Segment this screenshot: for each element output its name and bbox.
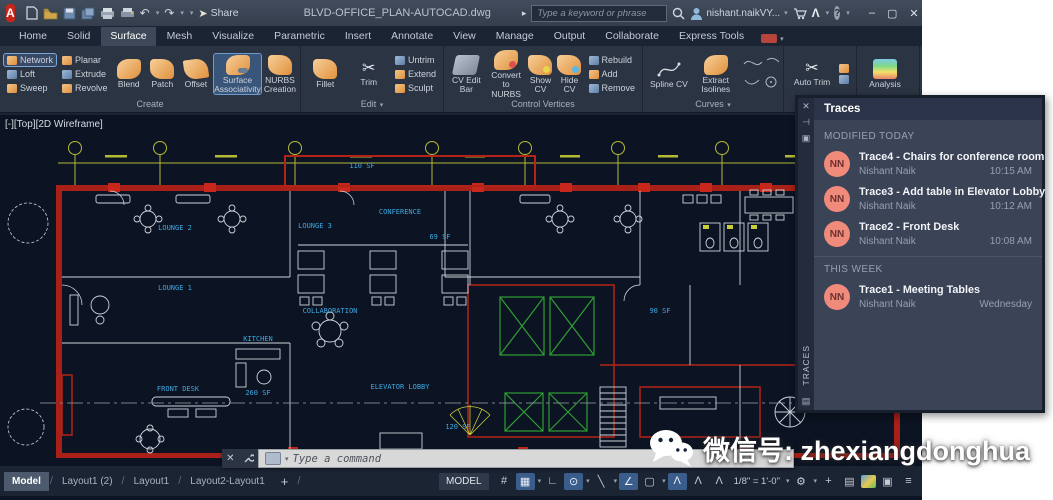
auto-trim-icon: ✂ <box>805 61 818 77</box>
layout2-layout1-tab[interactable]: Layout2-Layout1 <box>182 472 273 491</box>
model-space-button[interactable]: MODEL <box>439 473 489 490</box>
plan-geometry <box>8 142 900 459</box>
traces-palette: ✕ ⊣ ▣ TRACES ▤ Traces MODIFIED TODAY NN … <box>795 95 1045 413</box>
layout1-tab[interactable]: Layout1 <box>126 472 178 491</box>
annotation-scale-value[interactable]: 1/8" = 1'-0" <box>731 476 783 487</box>
clean-screen-icon[interactable]: ▣ <box>878 473 897 490</box>
trace-time: 10:08 AM <box>990 236 1032 247</box>
tab-surface[interactable]: Surface <box>101 27 155 46</box>
command-close-icon[interactable]: ✕ <box>226 453 234 464</box>
new-file-icon[interactable] <box>25 5 38 22</box>
room-label: FRONT DESK <box>157 385 200 393</box>
command-customize-wrench-icon[interactable] <box>243 453 254 464</box>
revolve-button[interactable]: Revolve <box>59 82 111 94</box>
tab-solid[interactable]: Solid <box>58 27 99 46</box>
section-divider <box>814 256 1042 257</box>
save-all-icon[interactable] <box>81 5 95 22</box>
trace-item[interactable]: NN Trace3 - Add table in Elevator Lobby … <box>824 186 1032 212</box>
room-label: ELEVATOR LOBBY <box>370 383 430 391</box>
trace-item[interactable]: NN Trace2 - Front Desk Nishant Naik10:08… <box>824 221 1032 247</box>
ortho-mode-icon[interactable]: ∟ <box>543 473 562 490</box>
graphics-performance-icon[interactable] <box>861 475 876 488</box>
avatar: NN <box>824 186 850 212</box>
fillet-icon <box>313 59 337 79</box>
ribbon-panel-edit: Fillet ✂Trim Untrim Extend Sculpt Edit ▾ <box>301 46 444 112</box>
add-button[interactable]: Add <box>586 68 639 80</box>
curve-tools-icons[interactable] <box>741 54 779 94</box>
spline-cv-button[interactable]: Spline CV <box>647 58 691 89</box>
undo-caret-icon[interactable]: ▾ <box>156 9 160 17</box>
untrim-button[interactable]: Untrim <box>392 54 439 66</box>
search-input[interactable] <box>531 5 667 22</box>
tab-home[interactable]: Home <box>10 27 56 46</box>
project-tool-icon[interactable] <box>839 75 849 84</box>
panel-label-curves[interactable]: Curves ▾ <box>643 99 783 112</box>
traces-section-heading: MODIFIED TODAY <box>824 131 1032 142</box>
traces-close-icon[interactable]: ✕ <box>802 101 810 112</box>
rebuild-button[interactable]: Rebuild <box>586 54 639 66</box>
help-icon[interactable]: ? <box>834 6 840 20</box>
extract-isolines-icon <box>704 55 728 75</box>
qat-dropdown-icon[interactable]: ▾ <box>190 9 194 17</box>
command-input[interactable]: Type a command <box>293 453 382 465</box>
annotation-scale-icon[interactable]: Λ <box>710 473 729 490</box>
tab-visualize[interactable]: Visualize <box>203 27 263 46</box>
title-arrow-icon: ▸ <box>522 8 527 19</box>
panel-label-edit[interactable]: Edit ▾ <box>301 99 443 112</box>
add-icon <box>589 70 599 79</box>
offset-button[interactable]: Offset <box>181 58 212 89</box>
ribbon-panel-curves: Spline CV Extract Isolines Curves ▾ <box>643 46 784 112</box>
trace-time: 10:15 AM <box>990 166 1032 177</box>
tab-manage[interactable]: Manage <box>487 27 543 46</box>
viewport-controls[interactable]: [-][Top][2D Wireframe] <box>5 119 103 130</box>
layout1-2-tab[interactable]: Layout1 (2) <box>54 472 121 491</box>
polar-tracking-icon[interactable]: ⊙ <box>564 473 583 490</box>
patch-button[interactable]: Patch <box>147 58 178 89</box>
search-icon[interactable] <box>672 5 685 22</box>
trim-scissors-icon: ✂ <box>362 61 375 77</box>
untrim-icon <box>395 56 405 65</box>
hide-cv-button[interactable]: Hide CV <box>556 54 582 95</box>
maximize-button[interactable]: ▢ <box>887 7 897 20</box>
patch-icon <box>150 59 174 79</box>
status-bar: Model / Layout1 (2) / Layout1 / Layout2-… <box>0 466 922 496</box>
traces-section-heading: THIS WEEK <box>824 264 1032 275</box>
customization-plus-icon[interactable]: + <box>819 473 838 490</box>
annotation-visibility-icon[interactable]: Λ <box>668 473 687 490</box>
room-label: 260 SF <box>245 389 270 397</box>
panel-label-create[interactable]: Create <box>0 99 300 112</box>
surface-associativity-icon <box>226 55 250 75</box>
room-label: KITCHEN <box>243 335 273 343</box>
blend-button[interactable]: Blend <box>114 58 145 89</box>
spline-cv-icon <box>657 59 681 79</box>
ribbon-panel-create: Network Loft Sweep Planar Extrude Revolv… <box>0 46 301 112</box>
floor-plan-canvas[interactable]: LOUNGE 2 LOUNGE 3 LOUNGE 1 CONFERENCE CO… <box>0 135 922 470</box>
panel-label-control-vertices[interactable]: Control Vertices <box>444 99 642 112</box>
cart-icon[interactable] <box>793 5 807 22</box>
trace-author: Nishant Naik <box>859 236 916 247</box>
new-layout-button[interactable]: + <box>273 474 297 489</box>
avatar: NN <box>824 151 850 177</box>
wechat-icon <box>648 428 694 469</box>
trace-title: Trace2 - Front Desk <box>859 221 1032 233</box>
share-plane-icon: ➤ <box>198 7 207 20</box>
blend-icon <box>117 59 141 79</box>
area-label: 110 SF <box>349 162 374 170</box>
tab-view[interactable]: View <box>444 27 485 46</box>
room-label: COLLABORATION <box>303 307 358 315</box>
tab-annotate[interactable]: Annotate <box>382 27 442 46</box>
trim-button[interactable]: ✂Trim <box>348 60 388 87</box>
snap-caret-icon[interactable]: ▾ <box>538 477 542 485</box>
traces-palette-titlebar: ✕ ⊣ ▣ TRACES ▤ <box>798 98 814 410</box>
open-folder-icon[interactable] <box>43 5 58 22</box>
sweep-button[interactable]: Sweep <box>4 82 56 94</box>
cv-edit-bar-button[interactable]: CV Edit Bar <box>448 54 485 95</box>
watermark-text: 微信号: zhexiangdonghua <box>703 429 1030 468</box>
tab-parametric[interactable]: Parametric <box>265 27 334 46</box>
tray-icon[interactable]: ▤ <box>840 473 859 490</box>
traces-panel-title: Traces <box>814 98 1042 120</box>
tab-insert[interactable]: Insert <box>336 27 380 46</box>
analysis-icon <box>873 59 897 79</box>
traces-autohide-icon[interactable]: ⊣ <box>802 117 810 128</box>
tab-mesh[interactable]: Mesh <box>158 27 202 46</box>
extend-icon <box>395 70 405 79</box>
traces-dock-icon[interactable]: ▤ <box>802 396 811 407</box>
fillet-button[interactable]: Fillet <box>305 58 345 89</box>
model-tab[interactable]: Model <box>4 472 49 491</box>
hide-cv-icon <box>557 55 581 75</box>
grid-display-icon[interactable]: # <box>495 473 514 490</box>
snap-mode-icon[interactable]: ▦ <box>516 473 535 490</box>
extrude-icon <box>62 70 72 79</box>
ribbon-overflow-button[interactable]: ▾ <box>761 34 784 43</box>
autocad-logo-icon[interactable]: A <box>6 4 15 22</box>
room-label: LOUNGE 1 <box>158 284 192 292</box>
rebuild-icon <box>589 56 599 65</box>
planar-icon <box>62 56 72 65</box>
user-icon <box>690 7 703 20</box>
convert-to-nurbs-button[interactable]: Convert to NURBS <box>488 49 525 99</box>
nurbs-creation-button[interactable]: NURBS Creation <box>264 54 296 95</box>
plot-icon[interactable] <box>100 5 115 22</box>
print-icon[interactable] <box>120 5 135 22</box>
revolve-icon <box>62 84 72 93</box>
tab-separator: / <box>296 475 301 487</box>
sculpt-button[interactable]: Sculpt <box>392 82 439 94</box>
polar-caret-icon[interactable]: ▾ <box>586 477 590 485</box>
osnap-caret-icon[interactable]: ▾ <box>662 477 666 485</box>
remove-icon <box>589 84 599 93</box>
trace-time: 10:12 AM <box>990 201 1032 212</box>
extend-button[interactable]: Extend <box>392 68 439 80</box>
settings-gear-icon[interactable]: ⚙ <box>791 473 810 490</box>
ribbon: Network Loft Sweep Planar Extrude Revolv… <box>0 46 922 113</box>
undo-icon[interactable]: ↶ <box>140 5 150 22</box>
autoscale-icon[interactable]: Λ <box>689 473 708 490</box>
offset-icon <box>183 58 210 81</box>
cv-edit-bar-icon <box>452 55 480 75</box>
network-surface-icon <box>7 56 17 65</box>
scale-caret-icon[interactable]: ▾ <box>786 477 790 485</box>
avatar: NN <box>824 221 850 247</box>
ribbon-overflow-icon <box>761 34 777 43</box>
iso-caret-icon[interactable]: ▾ <box>614 477 618 485</box>
tab-collaborate[interactable]: Collaborate <box>596 27 668 46</box>
area-label: 69 SF <box>429 233 450 241</box>
isometric-drafting-icon[interactable]: ╲ <box>592 473 611 490</box>
trace-title: Trace4 - Chairs for conference room <box>859 151 1032 163</box>
traces-vertical-label: TRACES <box>801 345 811 385</box>
room-label: LOUNGE 2 <box>158 224 192 232</box>
nurbs-creation-icon <box>268 55 292 75</box>
surface-associativity-button[interactable]: Surface Associativity <box>214 54 261 95</box>
convert-to-nurbs-icon <box>494 50 518 70</box>
loft-icon <box>7 70 17 79</box>
title-bar: A ↶▾ ↷▾ ▾ ➤Share BLVD-OFFICE_PLAN-AUTOCA… <box>0 0 922 26</box>
document-title: BLVD-OFFICE_PLAN-AUTOCAD.dwg <box>304 7 491 19</box>
network-surface-button[interactable]: Network <box>4 54 56 66</box>
show-cv-button[interactable]: Show CV <box>527 54 553 95</box>
traces-properties-icon[interactable]: ▣ <box>802 133 811 144</box>
watermark: 微信号: zhexiangdonghua <box>648 428 1030 469</box>
object-snap-icon[interactable]: ▢ <box>640 473 659 490</box>
tab-output[interactable]: Output <box>545 27 595 46</box>
extrude-button[interactable]: Extrude <box>59 68 111 80</box>
project-tool-icon[interactable] <box>839 64 849 73</box>
tab-express-tools[interactable]: Express Tools <box>670 27 753 46</box>
autodesk-app-icon[interactable]: Λ <box>812 6 820 20</box>
planar-button[interactable]: Planar <box>59 54 111 66</box>
trace-item[interactable]: NN Trace4 - Chairs for conference room N… <box>824 151 1032 177</box>
area-label: 90 SF <box>649 307 670 315</box>
remove-button[interactable]: Remove <box>586 82 639 94</box>
room-label: CONFERENCE <box>379 208 421 216</box>
close-button[interactable]: ✕ <box>909 7 918 20</box>
trace-author: Nishant Naik <box>859 299 916 310</box>
command-caret-icon[interactable]: ▾ <box>285 455 289 463</box>
trace-title: Trace3 - Add table in Elevator Lobby <box>859 186 1032 198</box>
trace-time: Wednesday <box>979 299 1032 310</box>
ribbon-panel-control-vertices: CV Edit Bar Convert to NURBS Show CV Hid… <box>444 46 643 112</box>
show-cv-icon <box>528 55 552 75</box>
room-label: LOUNGE 3 <box>298 222 332 230</box>
command-recent-icon[interactable] <box>265 452 281 465</box>
autocad-window: A ↶▾ ↷▾ ▾ ➤Share BLVD-OFFICE_PLAN-AUTOCA… <box>0 0 922 500</box>
extract-isolines-button[interactable]: Extract Isolines <box>694 54 738 95</box>
trace-author: Nishant Naik <box>859 201 916 212</box>
analysis-button[interactable]: Analysis <box>861 58 909 89</box>
avatar: NN <box>824 284 850 310</box>
redo-caret-icon[interactable]: ▾ <box>180 9 184 17</box>
isolate-objects-menu-icon[interactable]: ≡ <box>899 473 918 490</box>
settings-caret-icon[interactable]: ▾ <box>813 477 817 485</box>
osnap-tracking-icon[interactable]: ∠ <box>619 473 638 490</box>
signed-in-user[interactable]: nishant.naikVY...▾ <box>690 7 787 20</box>
trace-item[interactable]: NN Trace1 - Meeting Tables Nishant NaikW… <box>824 284 1032 310</box>
share-button[interactable]: ➤Share <box>198 7 238 20</box>
sculpt-icon <box>395 84 405 93</box>
save-icon[interactable] <box>63 5 76 22</box>
area-label: 120 SF <box>445 423 470 431</box>
sweep-icon <box>7 84 17 93</box>
redo-icon[interactable]: ↷ <box>164 5 174 22</box>
auto-trim-button[interactable]: ✂Auto Trim <box>788 60 836 87</box>
trace-title: Trace1 - Meeting Tables <box>859 284 1032 296</box>
minimize-button[interactable]: – <box>869 7 875 20</box>
ribbon-tab-bar: Home Solid Surface Mesh Visualize Parame… <box>0 26 922 46</box>
loft-button[interactable]: Loft <box>4 68 56 80</box>
trace-author: Nishant Naik <box>859 166 916 177</box>
